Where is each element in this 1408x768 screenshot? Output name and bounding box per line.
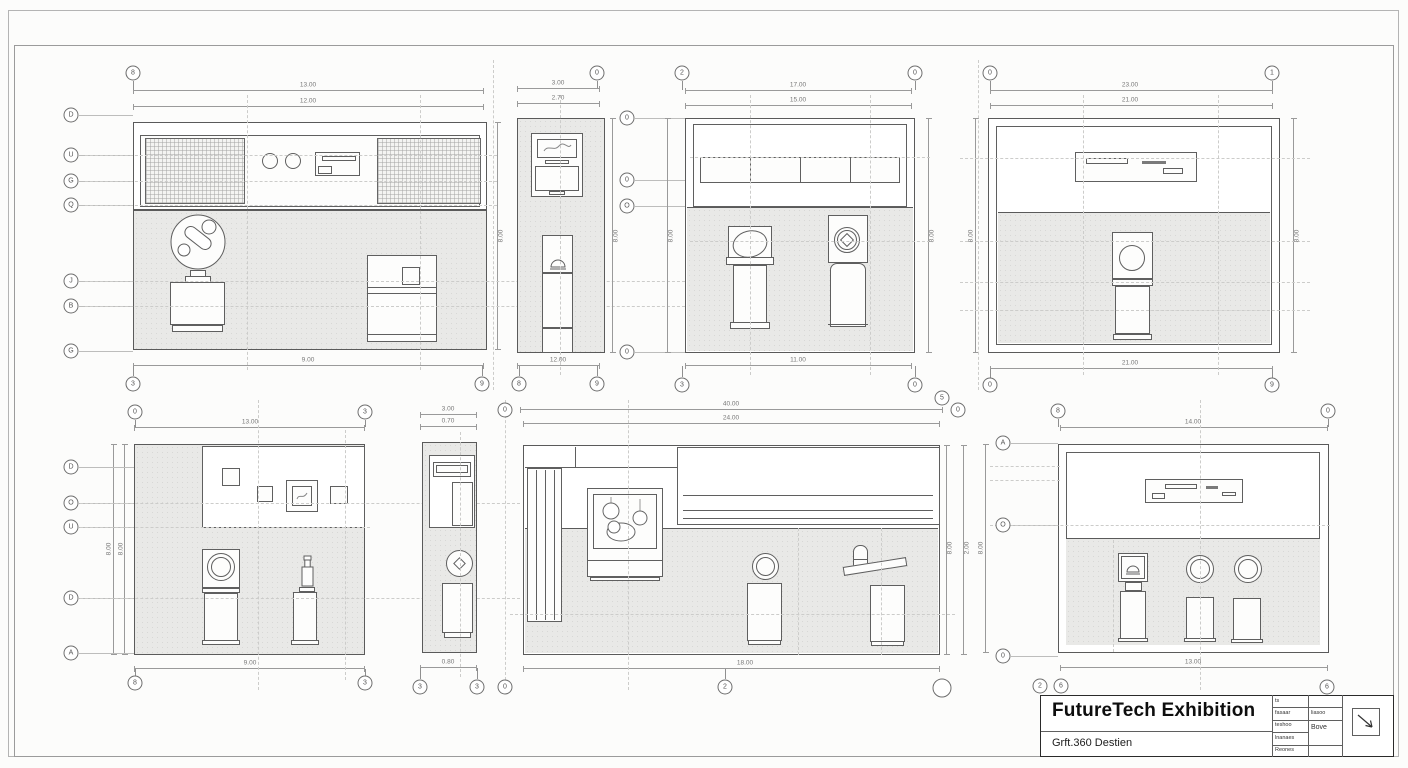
grid-bubble: U xyxy=(64,520,79,535)
centerline xyxy=(258,400,259,690)
grid-bubble: 3 xyxy=(358,405,373,420)
centerline xyxy=(960,158,1310,159)
grid-bubble: J xyxy=(64,274,79,289)
dimension-label: 8.00 xyxy=(118,543,125,556)
grid-stem xyxy=(725,669,726,679)
door-slat xyxy=(554,470,555,620)
grid-stem xyxy=(597,81,598,88)
grid-stem xyxy=(990,81,991,90)
banner-lightbox xyxy=(677,447,940,525)
centerline xyxy=(628,400,629,690)
dimension-line xyxy=(985,444,986,653)
grid-bubble: 8 xyxy=(1051,404,1066,419)
dimension-label: 24.00 xyxy=(723,415,739,422)
info-sign-bar xyxy=(1165,484,1197,489)
pedestal-base xyxy=(828,324,868,325)
dimension-line xyxy=(517,103,600,104)
centerline xyxy=(960,241,1310,242)
grid-stem xyxy=(519,366,520,376)
dimension-label: 2.00 xyxy=(964,542,971,555)
grid-leader xyxy=(79,115,133,116)
dimension-line xyxy=(1060,427,1328,428)
grid-line xyxy=(505,400,506,680)
wall-sign-box xyxy=(318,166,332,174)
dimension-label: 8.00 xyxy=(929,230,936,243)
grid-bubble: 0 xyxy=(498,680,513,695)
pedestal xyxy=(170,282,225,325)
dimension-label: 8.00 xyxy=(1294,230,1301,243)
dimension-label: 14.00 xyxy=(1185,419,1201,426)
dome-exhibit xyxy=(548,254,568,272)
grid-leader xyxy=(79,351,133,352)
grid-bubble: Q xyxy=(64,198,79,213)
display-case-item xyxy=(402,267,420,285)
centerline xyxy=(881,528,882,655)
title-table-cell: Reones xyxy=(1275,747,1294,753)
vitrine-base xyxy=(590,577,660,581)
globe-exhibit xyxy=(1119,245,1145,271)
grid-bubble: 0 xyxy=(1321,404,1336,419)
info-sign-box xyxy=(1163,168,1183,174)
project-subtitle: Grft.360 Destien xyxy=(1052,737,1132,749)
centerline xyxy=(510,614,955,615)
grid-bubble: 3 xyxy=(126,377,141,392)
dimension-label: 8.00 xyxy=(947,542,954,555)
pedestal-plinth xyxy=(871,641,904,646)
dimension-label: 9.00 xyxy=(244,660,257,667)
dimension-line xyxy=(975,118,976,353)
dimension-label: 2.70 xyxy=(552,95,565,102)
grid-bubble: O xyxy=(64,496,79,511)
project-title: FutureTech Exhibition xyxy=(1052,700,1255,722)
title-table-line xyxy=(1272,720,1342,721)
dimension-line xyxy=(520,409,943,410)
pedestal-plinth xyxy=(748,640,781,645)
centerline xyxy=(690,241,930,242)
centerline xyxy=(870,95,871,375)
pedestal xyxy=(1233,598,1261,641)
grid-bubble: 0 xyxy=(908,378,923,393)
centerline xyxy=(560,95,561,375)
door-slat xyxy=(536,470,537,620)
grid-bubble: 1 xyxy=(1265,66,1280,81)
grid-leader xyxy=(1011,656,1058,657)
dimension-line xyxy=(134,427,365,428)
grid-line xyxy=(493,60,494,390)
grid-stem xyxy=(420,668,421,679)
grid-leader xyxy=(635,118,685,119)
grid-bubble: U xyxy=(64,148,79,163)
title-table-line xyxy=(1308,695,1309,757)
mesh-panel xyxy=(377,138,481,204)
grid-bubble-empty xyxy=(933,679,952,698)
title-table-line xyxy=(1342,695,1343,757)
grid-bubble: 6 xyxy=(1054,679,1069,694)
grid-stem xyxy=(915,81,916,90)
display-case-shelf xyxy=(367,293,437,294)
dimension-label: 8.00 xyxy=(978,542,985,555)
banner-stripe xyxy=(683,495,933,496)
centerline xyxy=(960,282,1310,283)
centerline xyxy=(420,95,421,370)
grid-bubble: 0 xyxy=(620,111,635,126)
banner-stripe xyxy=(683,518,933,519)
grid-leader xyxy=(635,206,685,207)
showcase-plinth xyxy=(542,328,573,353)
grid-stem xyxy=(135,420,136,427)
centerline xyxy=(960,310,1310,311)
dimension-label: 21.00 xyxy=(1122,97,1138,104)
centerline xyxy=(85,181,497,182)
grid-bubble: 8 xyxy=(126,66,141,81)
centerline xyxy=(85,155,497,156)
pedestal xyxy=(747,583,782,641)
grid-bubble: 5 xyxy=(935,391,950,406)
porthole-ring-inner xyxy=(211,557,231,577)
dimension-line xyxy=(1060,667,1328,668)
dimension-line xyxy=(685,365,912,366)
centerline xyxy=(1218,95,1219,375)
grid-stem xyxy=(682,81,683,90)
dimension-line xyxy=(990,90,1273,91)
showcase-cabinet xyxy=(542,273,573,328)
frame-shelf xyxy=(545,160,569,164)
grid-bubble: 8 xyxy=(512,377,527,392)
title-block-divider xyxy=(1041,731,1272,732)
centerline xyxy=(460,432,461,677)
grid-bubble: O xyxy=(620,199,635,214)
grid-bubble: 0 xyxy=(983,378,998,393)
grid-leader xyxy=(635,352,685,353)
dimension-line xyxy=(113,444,114,655)
centerline xyxy=(1200,400,1201,690)
window-mullion xyxy=(850,158,851,182)
banner-stripe xyxy=(683,510,933,511)
centerline xyxy=(1083,95,1084,375)
elevation-3-floor xyxy=(687,207,913,351)
grid-stem xyxy=(597,366,598,376)
dimension-label: 9.00 xyxy=(302,357,315,364)
vitrine-exhibits xyxy=(594,495,656,548)
dimension-label: 13.00 xyxy=(300,82,316,89)
door-slat xyxy=(545,470,546,620)
grid-bubble: A xyxy=(64,646,79,661)
dimension-line xyxy=(517,88,600,89)
title-table-line xyxy=(1272,732,1308,733)
title-table-cell: lnanaes xyxy=(1275,735,1294,741)
grid-bubble: 0 xyxy=(620,173,635,188)
dimension-line xyxy=(133,106,484,107)
grid-bubble: 0 xyxy=(951,403,966,418)
grid-bubble: 0 xyxy=(498,403,513,418)
pedestal xyxy=(830,263,866,327)
north-arrow-icon xyxy=(1353,709,1379,735)
pedestal xyxy=(1120,591,1146,639)
dimension-label: 8.00 xyxy=(498,230,505,243)
dimension-line xyxy=(523,423,940,424)
grid-bubble: 0 xyxy=(908,66,923,81)
centerline xyxy=(798,528,799,655)
grid-leader xyxy=(635,180,685,181)
grid-stem xyxy=(682,366,683,377)
grid-bubble: D xyxy=(64,108,79,123)
grid-bubble: 8 xyxy=(128,676,143,691)
centerline xyxy=(85,205,497,206)
grid-bubble: 3 xyxy=(413,680,428,695)
centerline xyxy=(990,525,1330,526)
gallery-frame xyxy=(222,468,240,486)
drawing-sheet: 13.00 12.00 9.00 8.00 8 3 9 D U G Q J B … xyxy=(0,0,1408,768)
wall-band-line xyxy=(575,447,576,467)
dimension-line xyxy=(990,105,1273,106)
info-sign xyxy=(1145,479,1243,503)
dome-exhibit xyxy=(1124,560,1142,577)
grid-leader xyxy=(79,653,134,654)
grid-line xyxy=(978,60,979,390)
centerline xyxy=(750,95,751,375)
grid-stem xyxy=(1272,81,1273,90)
pedestal-plinth xyxy=(291,640,319,645)
info-sign-bar xyxy=(1206,486,1218,489)
frame-shelf xyxy=(549,191,565,195)
dimension-label: 17.00 xyxy=(790,82,806,89)
info-sign-box xyxy=(1152,493,1165,499)
grid-bubble: 3 xyxy=(358,676,373,691)
title-table-line xyxy=(1272,745,1342,746)
ring-exhibit-inner xyxy=(1238,559,1258,579)
grid-bubble: 9 xyxy=(590,377,605,392)
dimension-label: 13.00 xyxy=(1185,659,1201,666)
grid-leader xyxy=(79,467,134,468)
grid-bubble: 0 xyxy=(128,405,143,420)
display-case-shelf xyxy=(367,287,437,288)
title-table-cell: liasoo xyxy=(1311,710,1325,716)
pedestal-plinth xyxy=(202,640,240,645)
grid-bubble: D xyxy=(64,591,79,606)
grid-stem xyxy=(365,420,366,427)
display-case-base xyxy=(367,334,437,335)
pedestal xyxy=(204,593,238,641)
grid-bubble: 9 xyxy=(475,377,490,392)
title-table-cell: teshoo xyxy=(1275,722,1292,728)
dimension-label: 11.00 xyxy=(790,357,806,364)
title-table-line xyxy=(1272,695,1273,757)
pedestal-plinth xyxy=(1118,638,1148,642)
dimension-line xyxy=(523,668,940,669)
dimension-label: 8.00 xyxy=(106,543,113,556)
grid-bubble: O xyxy=(996,518,1011,533)
door-header-inner xyxy=(436,465,468,473)
grid-bubble: D xyxy=(64,460,79,475)
exhibit-stand-neck xyxy=(1125,582,1142,591)
pedestal xyxy=(442,583,473,633)
gallery-frame xyxy=(257,486,273,502)
grid-stem xyxy=(133,81,134,90)
pedestal-plinth xyxy=(1113,334,1152,340)
centerline xyxy=(345,430,346,680)
door-leaf xyxy=(452,482,473,526)
dimension-label: 12.00 xyxy=(550,357,566,364)
title-table-cell: Bove xyxy=(1311,724,1327,731)
centerline xyxy=(990,480,1060,481)
vitrine-plinth xyxy=(587,560,663,577)
centerline xyxy=(690,157,930,158)
capsule-seam xyxy=(854,559,867,560)
mesh-panel xyxy=(145,138,245,204)
grid-bubble: 9 xyxy=(1265,378,1280,393)
dimension-label: 12.00 xyxy=(300,98,316,105)
title-table-cell: ts xyxy=(1275,698,1279,704)
dimension-label: 8.00 xyxy=(613,230,620,243)
grid-bubble: A xyxy=(996,436,1011,451)
dimension-line xyxy=(517,365,600,366)
centerline xyxy=(1113,540,1114,652)
framed-artwork xyxy=(535,166,579,191)
title-table-cell: fasaar xyxy=(1275,710,1290,716)
dimension-label: 23.00 xyxy=(1122,82,1138,89)
grid-bubble: G xyxy=(64,174,79,189)
dimension-label: 21.00 xyxy=(1122,360,1138,367)
grid-stem xyxy=(915,366,916,377)
grid-bubble: B xyxy=(64,299,79,314)
dimension-label: 3.00 xyxy=(552,80,565,87)
pedestal-plinth xyxy=(1231,639,1263,643)
grid-stem xyxy=(133,366,134,376)
robot-arm-exhibit xyxy=(168,212,228,272)
dimension-line xyxy=(134,668,365,669)
dimension-label: 3.00 xyxy=(442,406,455,413)
dimension-label: 8.00 xyxy=(968,230,975,243)
dimension-line xyxy=(990,368,1273,369)
pedestal-plinth xyxy=(172,325,223,332)
grid-bubble: 3 xyxy=(675,378,690,393)
window-mullion xyxy=(800,158,801,182)
dimension-line xyxy=(420,414,477,415)
grid-leader xyxy=(1011,443,1058,444)
dimension-line xyxy=(685,90,912,91)
grid-bubble: 2 xyxy=(1033,679,1048,694)
info-sign-box xyxy=(1222,492,1236,496)
grid-bubble: 2 xyxy=(675,66,690,81)
grid-stem xyxy=(477,668,478,679)
dimension-label: 40.00 xyxy=(723,401,739,408)
grid-bubble: 0 xyxy=(590,66,605,81)
title-table-line xyxy=(1272,707,1342,708)
dimension-label: 13.00 xyxy=(242,419,258,426)
grid-bubble: 0 xyxy=(620,345,635,360)
grid-bubble: 2 xyxy=(718,680,733,695)
dimension-label: 15.00 xyxy=(790,97,806,104)
grid-bubble: 6 xyxy=(1320,680,1335,695)
grid-bubble: 3 xyxy=(470,680,485,695)
ring-exhibit-inner xyxy=(756,557,775,576)
bottle-exhibit xyxy=(298,555,316,588)
centerline xyxy=(80,527,370,528)
dimension-label: 0.70 xyxy=(442,418,455,425)
grid-stem xyxy=(1058,419,1059,427)
pedestal-plinth xyxy=(444,632,471,638)
centerline xyxy=(247,95,248,370)
dimension-line xyxy=(133,365,484,366)
dimension-line xyxy=(420,667,477,668)
dimension-label: 0.80 xyxy=(442,659,455,666)
grid-bubble: 0 xyxy=(996,649,1011,664)
artwork-sketch xyxy=(538,140,576,157)
grid-bubble: 0 xyxy=(983,66,998,81)
grid-stem xyxy=(1328,419,1329,427)
info-sign xyxy=(1075,152,1197,182)
dimension-line xyxy=(685,105,912,106)
centerline xyxy=(990,466,1060,467)
dimension-line xyxy=(420,426,477,427)
grid-stem xyxy=(482,366,483,376)
grid-bubble: G xyxy=(64,344,79,359)
dimension-line xyxy=(133,90,484,91)
dimension-label: 8.00 xyxy=(668,230,675,243)
pedestal xyxy=(293,592,317,641)
dimension-label: 18.00 xyxy=(737,660,753,667)
wall-sign-bar xyxy=(322,156,356,161)
info-sign-bar xyxy=(1142,161,1166,164)
